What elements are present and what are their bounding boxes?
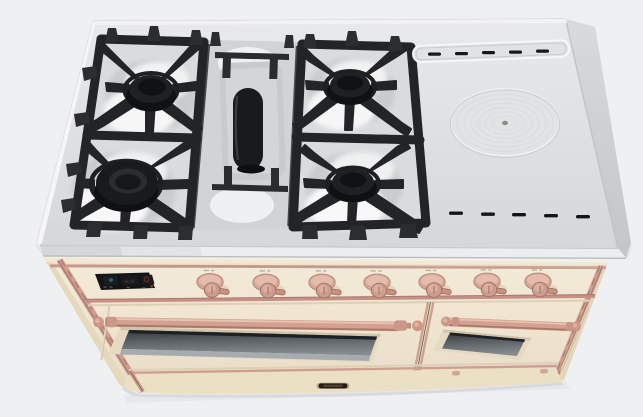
svg-text:0:0: 0:0	[125, 279, 134, 285]
